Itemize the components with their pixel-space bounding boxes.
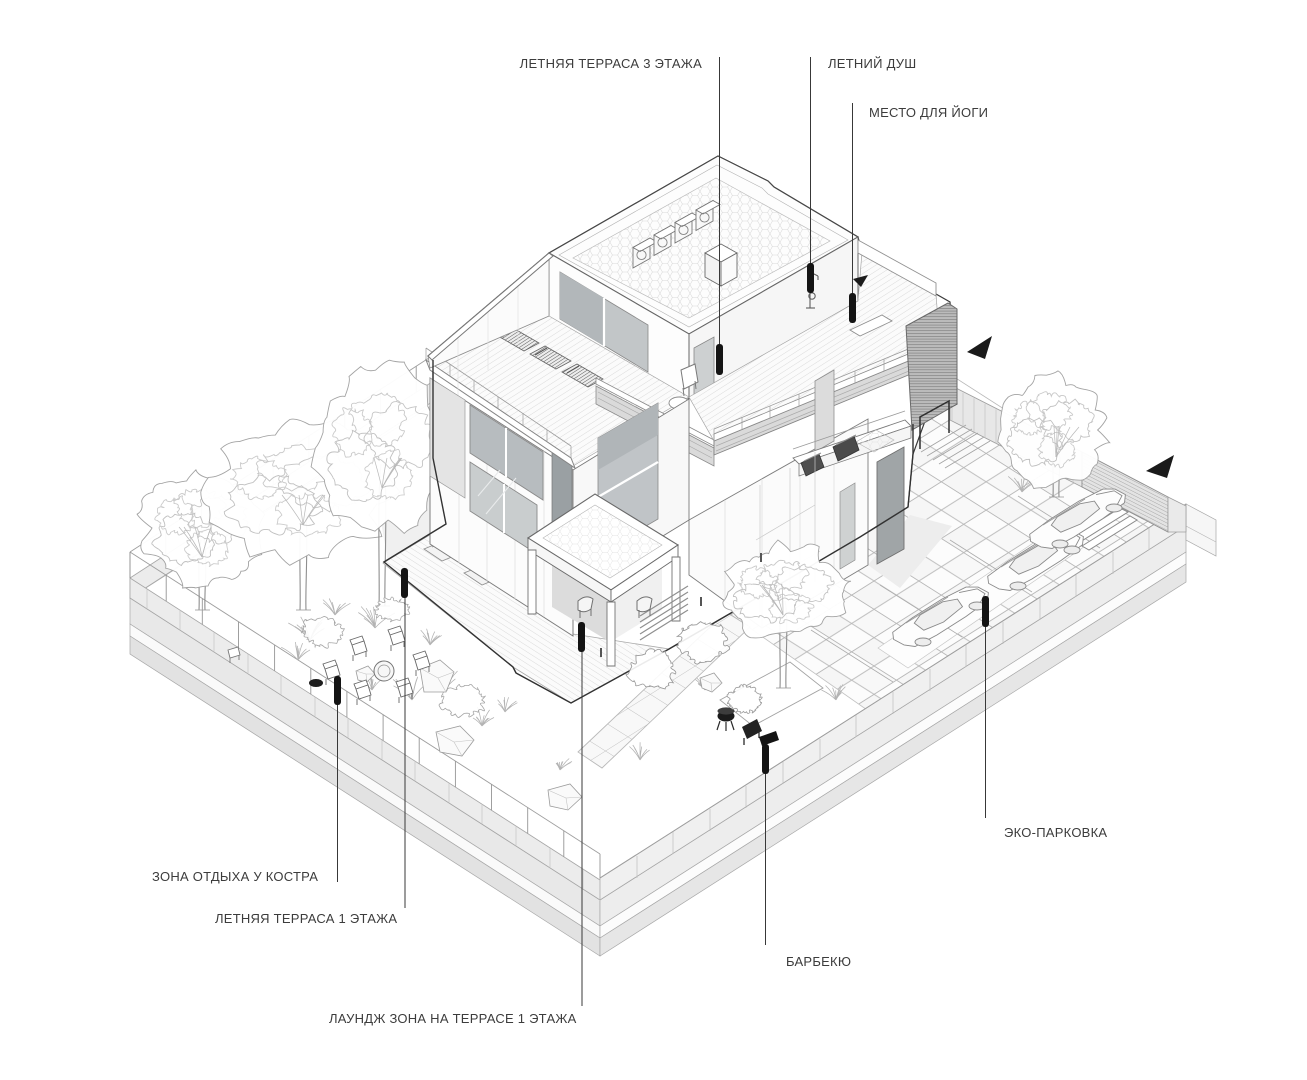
svg-text:ЛЕТНЯЯ ТЕРРАСА 1 ЭТАЖА: ЛЕТНЯЯ ТЕРРАСА 1 ЭТАЖА [215, 911, 397, 926]
svg-text:БАРБЕКЮ: БАРБЕКЮ [786, 954, 851, 969]
svg-text:МЕСТО ДЛЯ ЙОГИ: МЕСТО ДЛЯ ЙОГИ [869, 105, 988, 120]
svg-text:ЛАУНДЖ ЗОНА НА ТЕРРАСЕ 1 ЭТАЖА: ЛАУНДЖ ЗОНА НА ТЕРРАСЕ 1 ЭТАЖА [329, 1011, 577, 1026]
svg-text:ЭКО-ПАРКОВКА: ЭКО-ПАРКОВКА [1004, 825, 1107, 840]
svg-text:ЛЕТНИЙ ДУШ: ЛЕТНИЙ ДУШ [828, 56, 916, 71]
svg-text:ЛЕТНЯЯ ТЕРРАСА 3 ЭТАЖА: ЛЕТНЯЯ ТЕРРАСА 3 ЭТАЖА [520, 56, 702, 71]
svg-text:ЗОНА ОТДЫХА У КОСТРА: ЗОНА ОТДЫХА У КОСТРА [152, 869, 318, 884]
